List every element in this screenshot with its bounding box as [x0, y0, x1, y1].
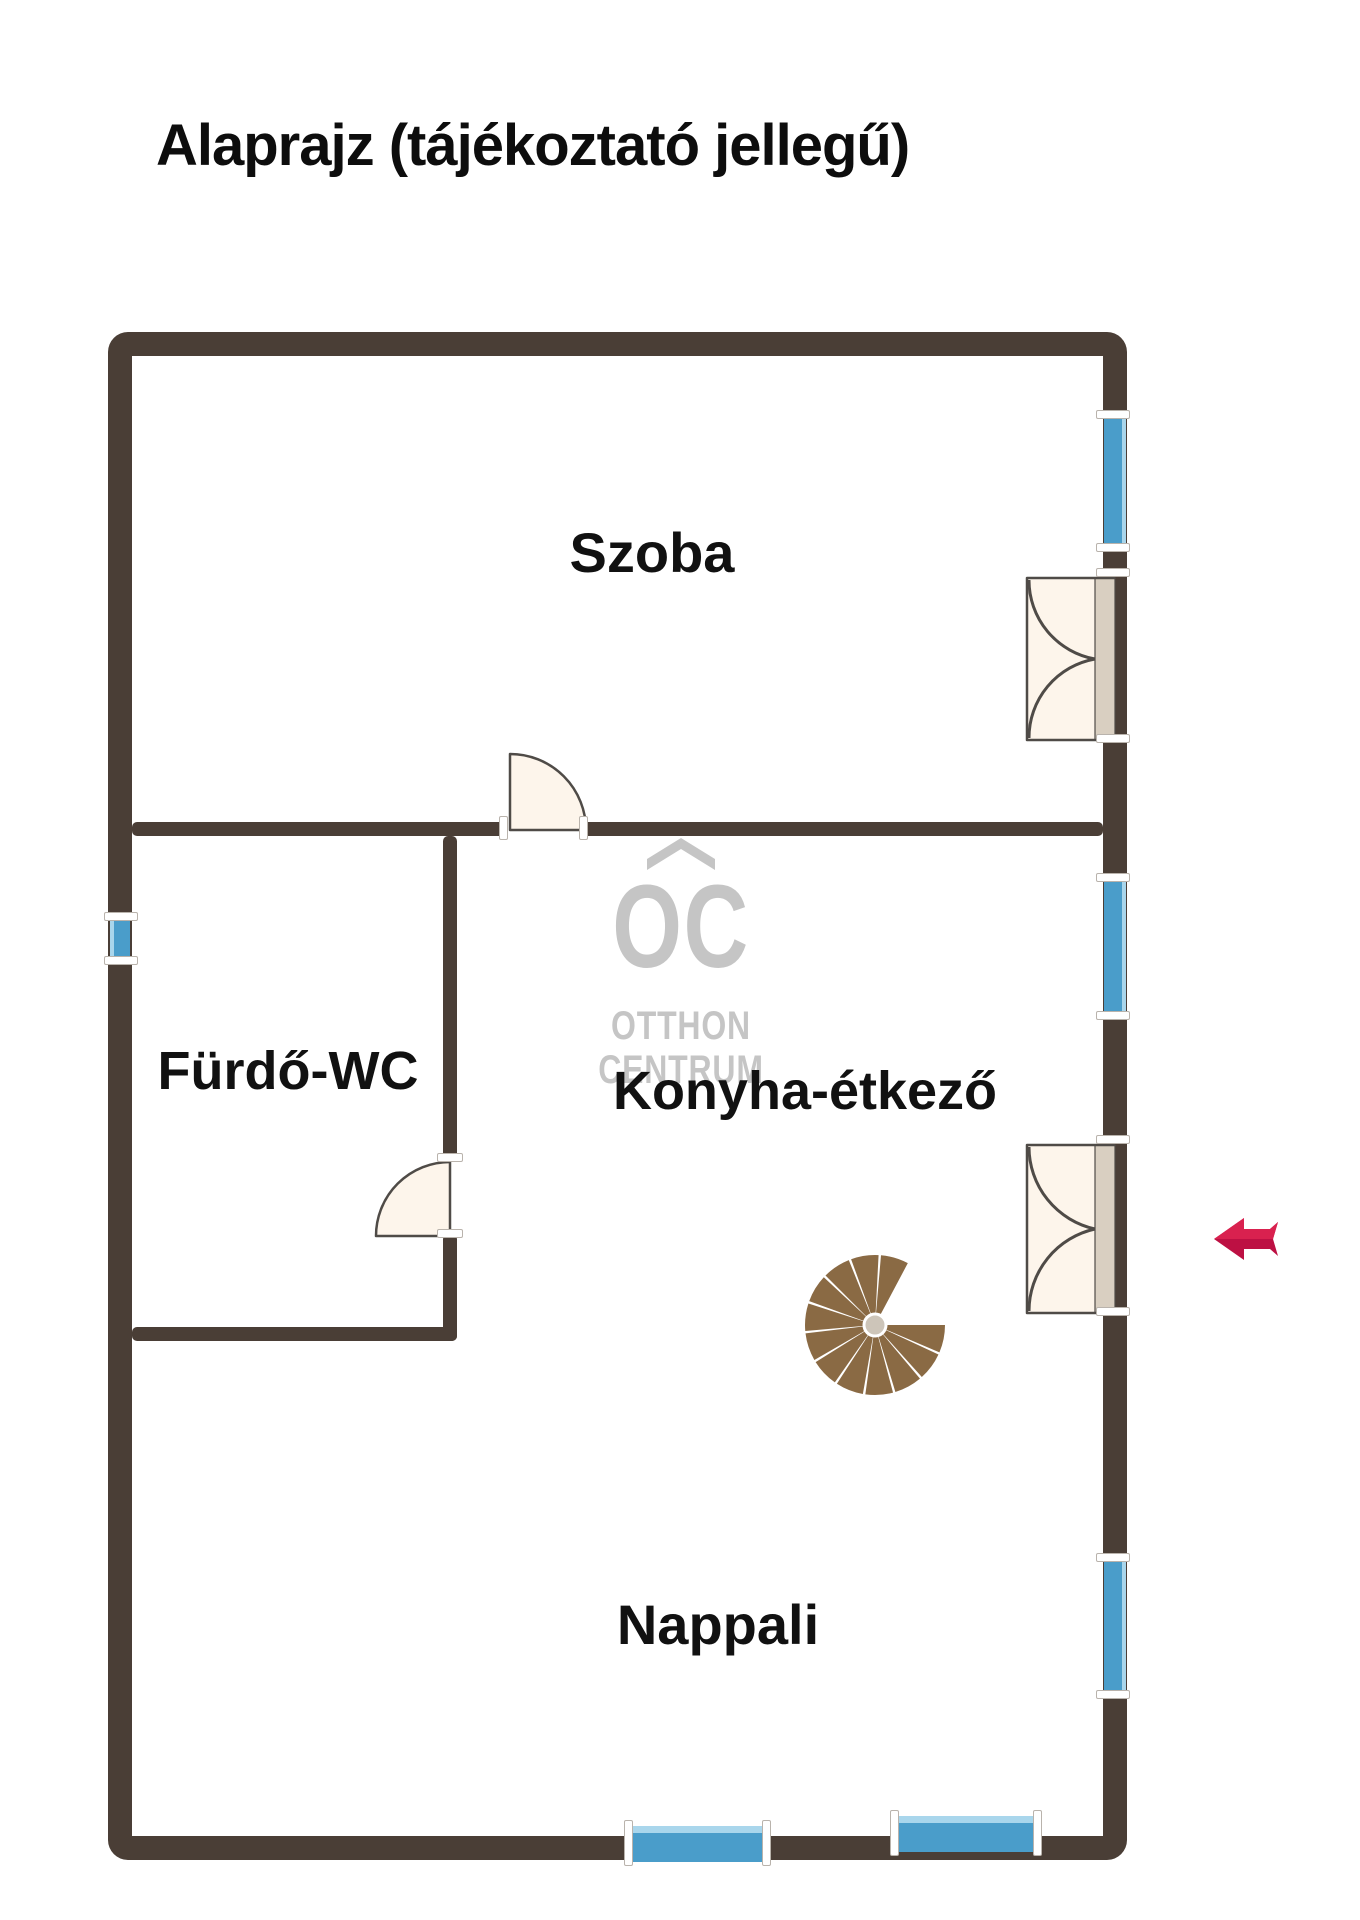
room-label-konyha: Konyha-étkező — [595, 1060, 1015, 1122]
window-right-top-glass — [1122, 418, 1126, 549]
door-end-cap — [1096, 734, 1130, 743]
window-end-cap — [1096, 1553, 1130, 1562]
door-end-cap — [437, 1153, 463, 1162]
window-end-cap — [1096, 873, 1130, 882]
window-end-cap — [1096, 543, 1130, 552]
door-end-cap — [579, 816, 588, 840]
window-end-cap — [762, 1820, 771, 1866]
room-label-furdo: Fürdő-WC — [78, 1040, 498, 1102]
window-end-cap — [1096, 1011, 1130, 1020]
window-bottom-right-glass — [897, 1816, 1035, 1823]
room-label-szoba: Szoba — [442, 520, 862, 585]
door-end-cap — [1096, 1307, 1130, 1316]
window-end-cap — [1033, 1810, 1042, 1856]
window-bottom-left-glass — [631, 1826, 764, 1833]
door-end-cap — [499, 816, 508, 840]
entrance-double-door — [1023, 1141, 1115, 1317]
window-right-top — [1104, 418, 1124, 549]
window-end-cap — [104, 956, 138, 965]
entrance-arrow-icon — [1212, 1216, 1280, 1262]
window-right-middle-glass — [1122, 881, 1126, 1017]
szoba-balcony-double-door — [1023, 574, 1115, 744]
room-label-nappali: Nappali — [508, 1592, 928, 1657]
otthon-centrum-logo-monogram: OC — [567, 868, 795, 986]
window-right-bottom-glass — [1122, 1561, 1126, 1696]
otthon-centrum-logo-line1: OTTHON — [561, 1006, 801, 1046]
door-end-cap — [1096, 568, 1130, 577]
interior-wall-szoba-left — [132, 822, 508, 836]
spiral-staircase — [803, 1253, 947, 1397]
furdo-door — [372, 1156, 456, 1240]
interior-wall-furdo-bottom — [132, 1327, 457, 1341]
window-end-cap — [624, 1820, 633, 1866]
window-end-cap — [104, 912, 138, 921]
interior-wall-furdo-vertical-upper — [443, 836, 457, 1161]
page-title: Alaprajz (tájékoztató jellegű) — [156, 112, 909, 179]
window-end-cap — [1096, 1690, 1130, 1699]
door-end-cap — [1096, 1135, 1130, 1144]
window-end-cap — [1096, 410, 1130, 419]
szoba-interior-door — [502, 740, 590, 834]
window-right-bottom — [1104, 1561, 1124, 1696]
interior-wall-furdo-vertical-lower — [443, 1234, 457, 1341]
window-end-cap — [890, 1810, 899, 1856]
door-end-cap — [437, 1229, 463, 1238]
window-right-middle — [1104, 881, 1124, 1017]
interior-wall-szoba-right — [582, 822, 1103, 836]
